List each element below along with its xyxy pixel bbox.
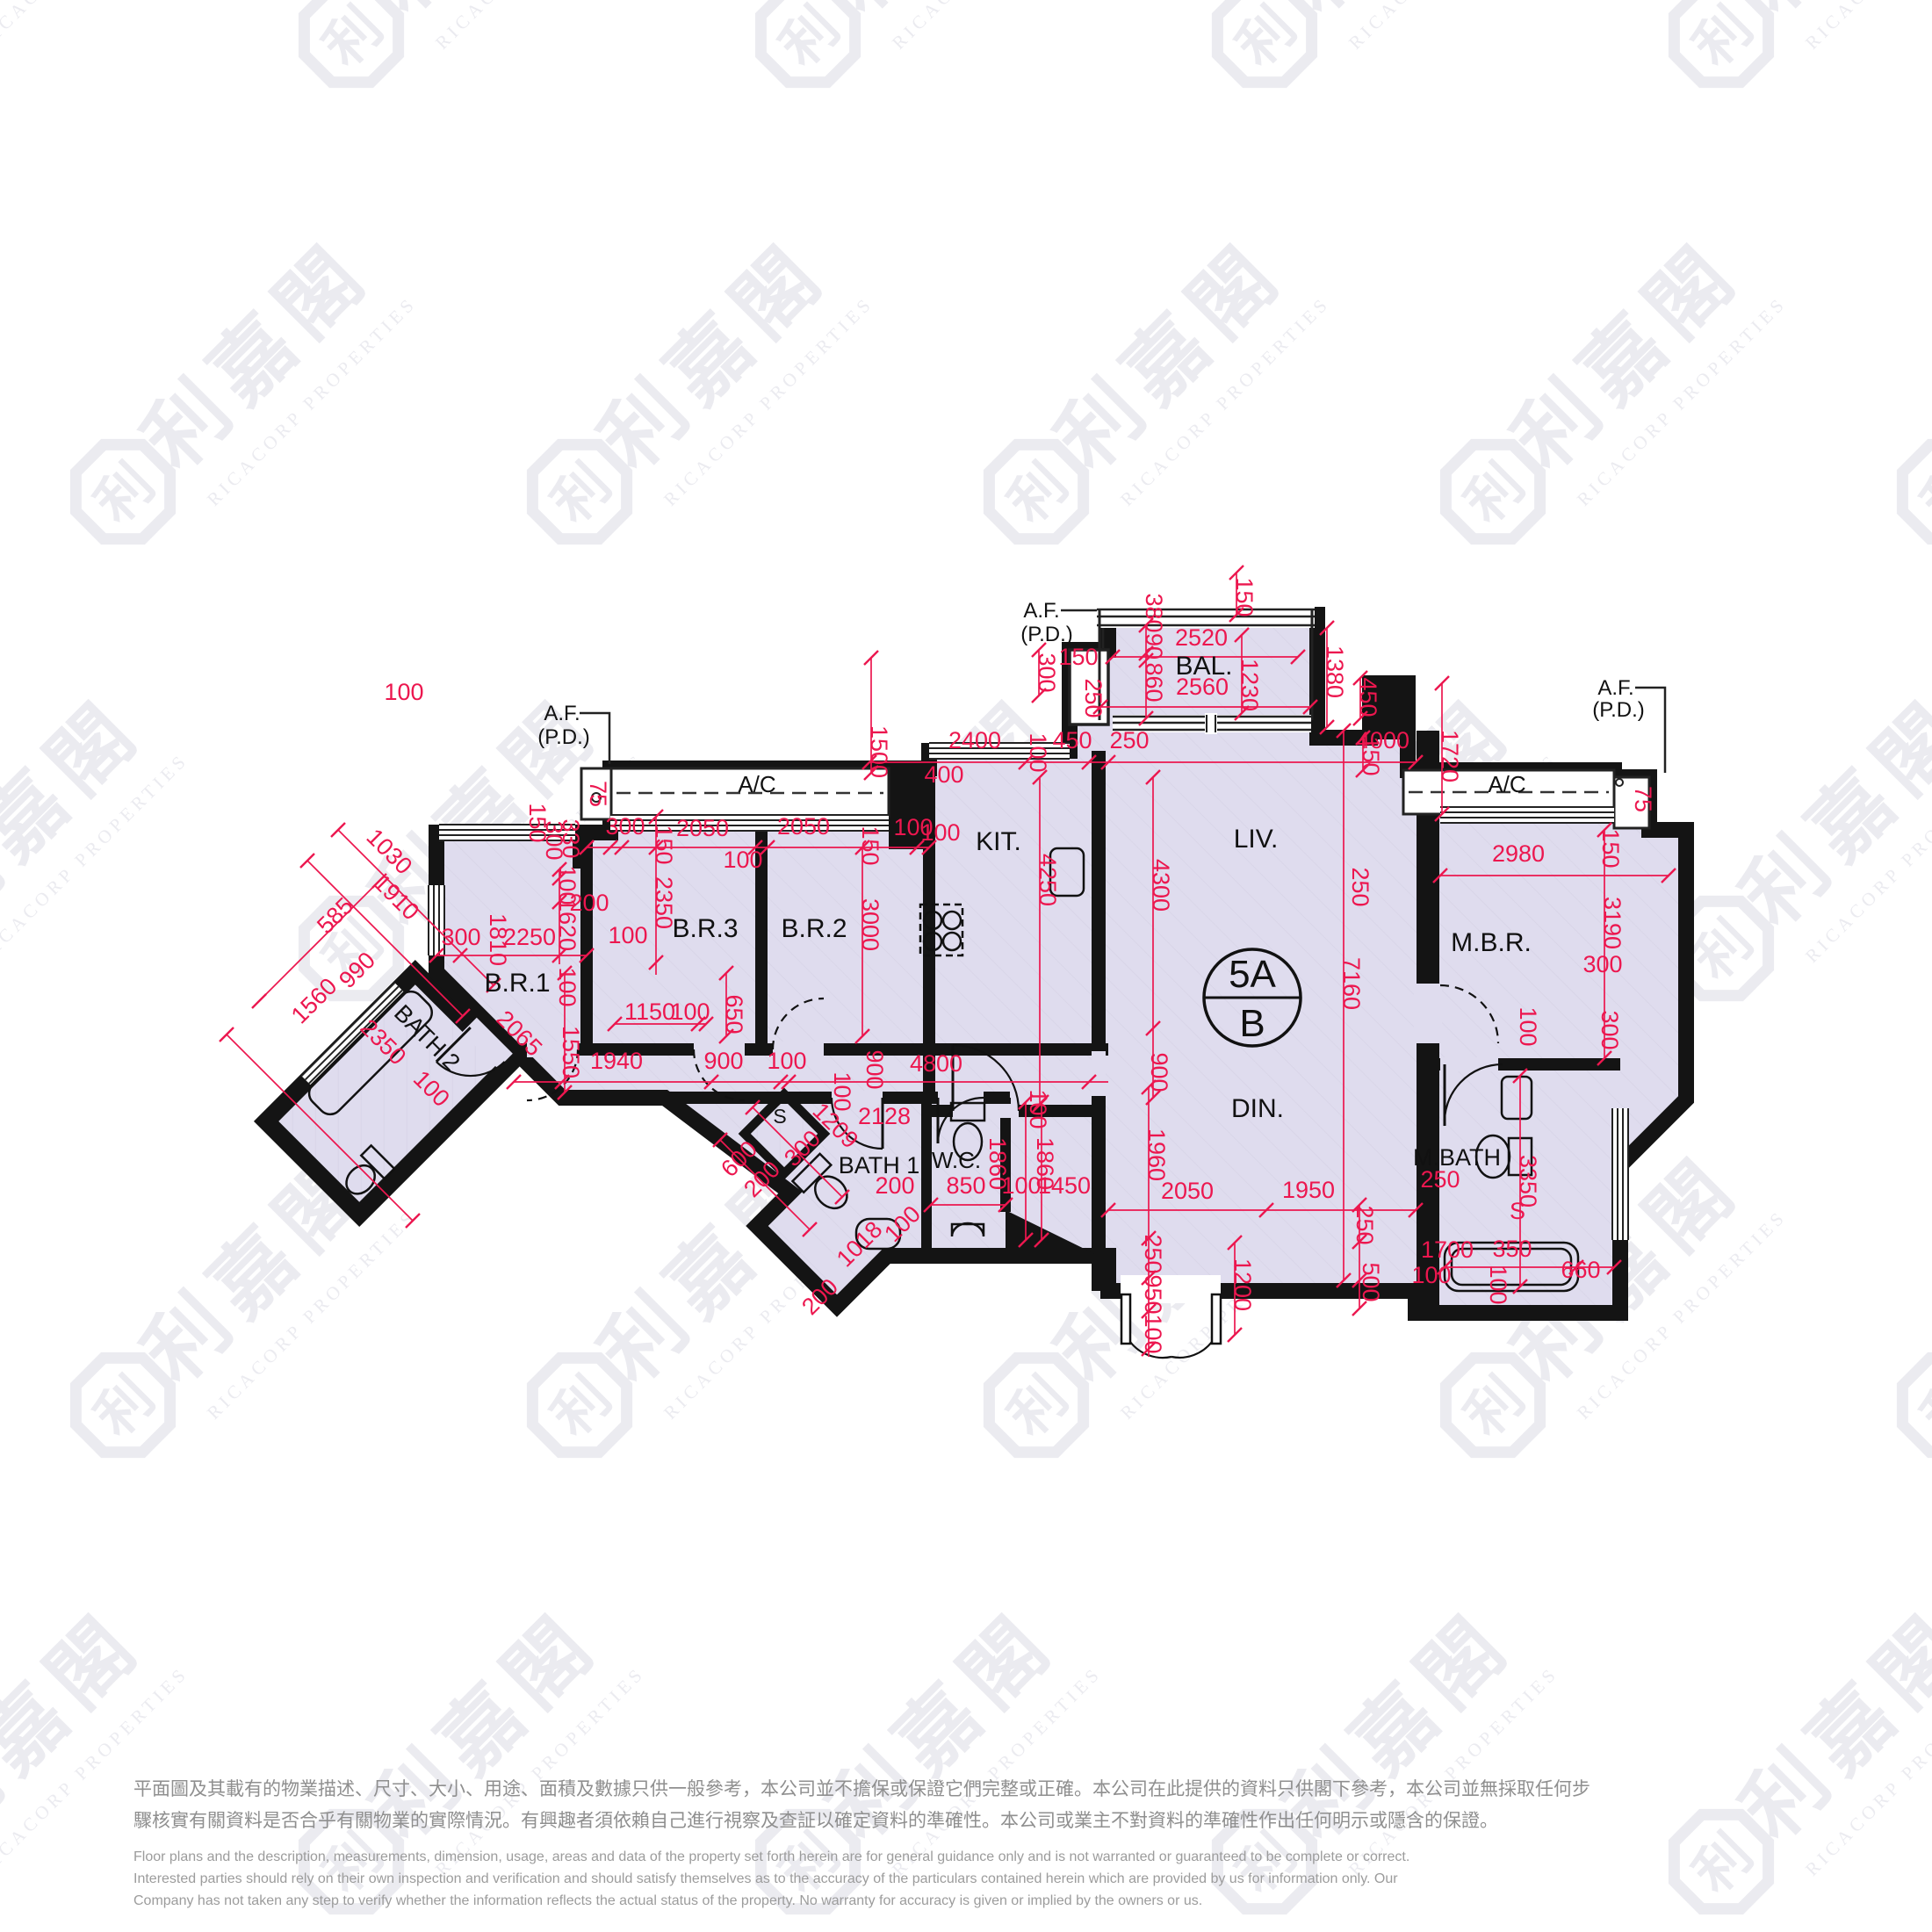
dim-text: 100 [1411,1262,1451,1288]
dim-text: 100 [670,998,710,1025]
room-label-b-r-3: B.R.3 [672,914,738,943]
room-label-bath-1: BATH 1 [839,1152,920,1179]
watermark-tile: 利利嘉閣RICACORP PROPERTIES [0,674,192,1038]
dim-text: S [1510,1198,1525,1224]
room-label-bal-: BAL. [1175,652,1232,681]
dim-text: 2520 [1175,624,1228,651]
disclaimer-en-line2: Interested parties should rely on their … [133,1868,1828,1890]
dim-text: 300 [1597,1010,1623,1049]
dim-text: 250 [1080,678,1107,717]
watermark-tile: 利利嘉閣RICACORP PROPERTIES [513,217,877,581]
dim-text: 100 [554,967,580,1006]
dim-text: 7160 [1338,957,1365,1010]
dim-text: 90 [1141,633,1167,660]
dim-text: 2980 [1492,840,1545,867]
watermark-tile: 利利嘉閣RICACORP PROPERTIES [0,0,192,125]
dim-text: 100 [608,922,647,948]
dim-text: 2050 [1161,1178,1214,1204]
dim-text: 100 [1001,1172,1041,1199]
dim-text: 2050 [676,815,729,841]
dim-text: 150 [1058,644,1098,670]
dim-text: 330 [558,818,584,858]
dim-text: 150 [1231,577,1258,616]
watermark-tile: 利利嘉閣RICACORP PROPERTIES [1654,0,1932,125]
floorplan-page: 利利嘉閣RICACORP PROPERTIES利利嘉閣RICACORP PROP… [0,0,1932,1932]
dim-text: 250 [1109,727,1149,753]
disclaimer-en-line1: Floor plans and the description, measure… [133,1846,1828,1868]
watermark-brand-latin: RICACORP PROPERTIES [1344,0,1562,54]
dim-text: 150 [651,825,677,864]
disclaimer-zh-line2: 驟核實有關資料是否合乎有關物業的實際情況。有興趣者須依賴自己進行視察及查証以確定… [133,1806,1828,1837]
disclaimer-zh-line1: 平面圖及其載有的物業描述、尺寸、大小、用途、面積及數據只供一般參考，本公司並不擔… [133,1774,1828,1806]
dim-text: 380 [1141,593,1167,632]
room-label-a-f-: A.F. [1597,676,1633,700]
unit-badge-bottom: B [1239,1002,1265,1045]
watermark-tile: 利利嘉閣RICACORP PROPERTIES [1883,217,1932,581]
dim-text: 950 [1140,1274,1166,1314]
dim-text: 100 [1025,1089,1051,1128]
watermark-tile: 利利嘉閣RICACORP PROPERTIES [741,0,1106,125]
dim-text: 100 [1485,1265,1511,1304]
watermark-tile: 利利嘉閣RICACORP PROPERTIES [56,217,421,581]
watermark-tile: 利利嘉閣RICACORP PROPERTIES [285,0,649,125]
dim-text: 900 [861,1049,888,1089]
dim-text: 1230 [1236,659,1263,711]
dim-text: 250 [1352,1205,1378,1244]
dim-text: 4250 [1034,854,1061,906]
dim-text: 1380 [1322,645,1348,698]
room-label-b-r-2: B.R.2 [781,914,847,943]
dim-text: 850 [946,1172,985,1199]
dim-text: 1150 [624,998,675,1025]
room-label-a-c: A/C [738,771,775,797]
dim-text: 150 [857,825,883,865]
dim-text: 75 [585,781,611,807]
watermark-brand-latin: RICACORP PROPERTIES [0,0,192,54]
dim-text: 100 [723,847,762,873]
room-label-din-: DIN. [1231,1094,1284,1123]
dim-text: 2128 [858,1103,911,1129]
watermark-brand-latin: RICACORP PROPERTIES [888,0,1106,54]
dim-text: 450 [1355,677,1381,717]
dim-text: 3190 [1599,897,1626,949]
dim-text: 2050 [777,813,830,840]
dim-text: 100 [767,1048,806,1074]
dim-text: 100 [1515,1006,1541,1046]
room-label-a-f-: A.F. [544,702,580,725]
dim-text: 250 [1140,1234,1166,1273]
dim-text: 200 [569,890,609,916]
dim-text: 100 [1140,1314,1166,1353]
watermark-tile: 利利嘉閣RICACORP PROPERTIES [1654,674,1932,1038]
dim-text: 350 [1492,1236,1532,1262]
dim-text: 1500 [866,725,892,778]
dim-text: 1950 [1282,1177,1335,1203]
dim-text: 1550 [558,1026,584,1078]
dim-text: 1720 [1437,730,1463,782]
dim-text: 1450 [1038,1172,1091,1199]
dim-text: 150 [1597,828,1624,868]
disclaimer: 平面圖及其載有的物業描述、尺寸、大小、用途、面積及數據只供一般參考，本公司並不擔… [133,1774,1828,1912]
dim-text: 4300 [1148,859,1174,912]
room-label-m-b-r-: M.B.R. [1451,928,1532,957]
floor-plan-drawing: 利利嘉閣RICACORP PROPERTIES利利嘉閣RICACORP PROP… [0,0,1932,1932]
dim-text: 860 [1141,662,1167,702]
dim-text: 500 [1358,1262,1384,1301]
dim-text: 2400 [948,727,1001,753]
dim-text: 250 [1347,867,1373,906]
disclaimer-en-line3: Company has not taken any step to verify… [133,1890,1828,1912]
dim-text: 400 [924,761,963,788]
room-label-kit-: KIT. [976,827,1021,856]
dim-text: 660 [1561,1257,1600,1283]
dim-text: 900 [703,1048,743,1074]
watermark-brand-cjk: 利嘉閣 [1726,682,1932,943]
room-label--p-d-: (P.D.) [1020,623,1073,646]
watermark-brand-latin: RICACORP PROPERTIES [1801,0,1932,54]
room-label--p-d-: (P.D.) [537,725,590,749]
dim-text: 900 [1146,1052,1172,1092]
dim-text: 100 [893,814,933,840]
watermark-tile: 利利嘉閣RICACORP PROPERTIES [970,217,1334,581]
room-label-liv-: LIV. [1234,825,1279,854]
room-label-a-c: A/C [1488,771,1525,797]
dim-text: 1700 [1421,1236,1474,1263]
dim-text: 300 [441,924,480,950]
watermark-brand-latin: RICACORP PROPERTIES [431,0,649,54]
dim-text: 75 [1630,786,1656,812]
dim-text: 450 [1052,727,1092,753]
dim-text: 100 [1025,732,1051,772]
dim-text: 4800 [910,1050,962,1077]
room-label-m-bath: M.BATH [1413,1144,1501,1171]
dim-text: 1960 [1143,1128,1170,1181]
unit-badge-top: 5A [1229,953,1276,996]
watermark-tile: 利利嘉閣RICACORP PROPERTIES [1426,217,1791,581]
dim-text: 1810 [485,913,511,966]
dim-text: 300 [605,813,645,840]
dim-text: 100 [384,679,423,705]
room-label-b-r-1: B.R.1 [484,969,550,998]
dim-text: 300 [1034,652,1060,692]
dim-text: 300 [1582,951,1622,977]
room-label-w-c-: W.C. [932,1147,981,1173]
room-label-s: S [773,1105,786,1128]
dim-text: 3000 [857,898,883,951]
room-label-a-f-: A.F. [1023,599,1059,623]
dim-text: 1200 [1229,1258,1256,1311]
dim-text: 650 [721,994,747,1034]
dim-text: 1940 [590,1048,643,1074]
dim-text: 150 [1358,736,1384,775]
watermark-tile: 利利嘉閣RICACORP PROPERTIES [1198,0,1562,125]
room-label--p-d-: (P.D.) [1592,698,1645,722]
watermark-tile: 利利嘉閣RICACORP PROPERTIES [1883,1130,1932,1495]
